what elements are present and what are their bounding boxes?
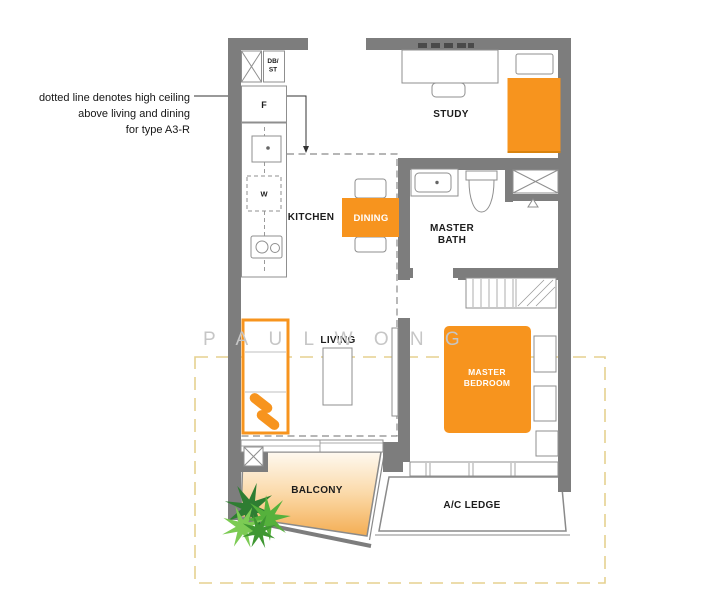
column-x-icon [244, 447, 263, 466]
fixture-label-washer: W [260, 190, 268, 199]
watermark: P A U L W O N G [203, 329, 468, 350]
wardrobe [466, 278, 556, 308]
room-label-master-bath-1: MASTER [430, 223, 474, 234]
vanity-basin [415, 173, 451, 192]
wall-top-left [228, 38, 308, 50]
dining-chair-bottom [355, 237, 386, 252]
wall-bath-left [398, 158, 410, 280]
wall-shower-bottom [505, 194, 558, 201]
room-label-master-bedroom-1: MASTER [468, 367, 506, 377]
study-chair [432, 83, 465, 97]
basin-drain-icon [435, 181, 438, 184]
study-desk [402, 50, 498, 83]
kitchen-sink [252, 136, 281, 162]
coffee-table [323, 348, 352, 405]
fixture-label-fridge: F [261, 100, 267, 110]
wall-left [228, 38, 241, 520]
fixture-label-st: ST [269, 67, 277, 74]
bedroom-window [410, 462, 558, 476]
room-label-kitchen: KITCHEN [288, 212, 335, 223]
room-label-balcony: BALCONY [291, 485, 343, 496]
study-bed [508, 78, 561, 153]
annotation-line3: for type A3-R [126, 124, 190, 136]
wall-door-stub-left [408, 268, 413, 278]
annotation-line2: above living and dining [78, 108, 190, 120]
wall-balcony-bedroom [383, 442, 403, 472]
floor-plan-svg: dotted line denotes high ceiling above l… [0, 0, 720, 600]
wall-door-stub-right [453, 268, 458, 278]
sink-drain-icon [266, 146, 270, 150]
high-window-dashes [418, 43, 474, 48]
room-label-master-bedroom-2: BEDROOM [464, 378, 511, 388]
floor-plan-page: dotted line denotes high ceiling above l… [0, 0, 720, 600]
bedside-table [536, 431, 558, 456]
fixture-label-db: DB/ [267, 58, 278, 65]
room-label-dining: DINING [353, 213, 388, 224]
annotation-line1: dotted line denotes high ceiling [39, 92, 190, 104]
toilet-tank [466, 171, 497, 180]
bed-pillow-bottom [534, 386, 556, 421]
room-label-study: STUDY [433, 109, 468, 120]
wall-study-bath [398, 158, 558, 170]
room-label-master-bath-2: BATH [438, 235, 466, 246]
study-bed-pillow [516, 54, 553, 74]
dining-chair-top [355, 179, 386, 198]
bed-pillow-top [534, 336, 556, 372]
room-label-ac-ledge: A/C LEDGE [443, 500, 500, 511]
